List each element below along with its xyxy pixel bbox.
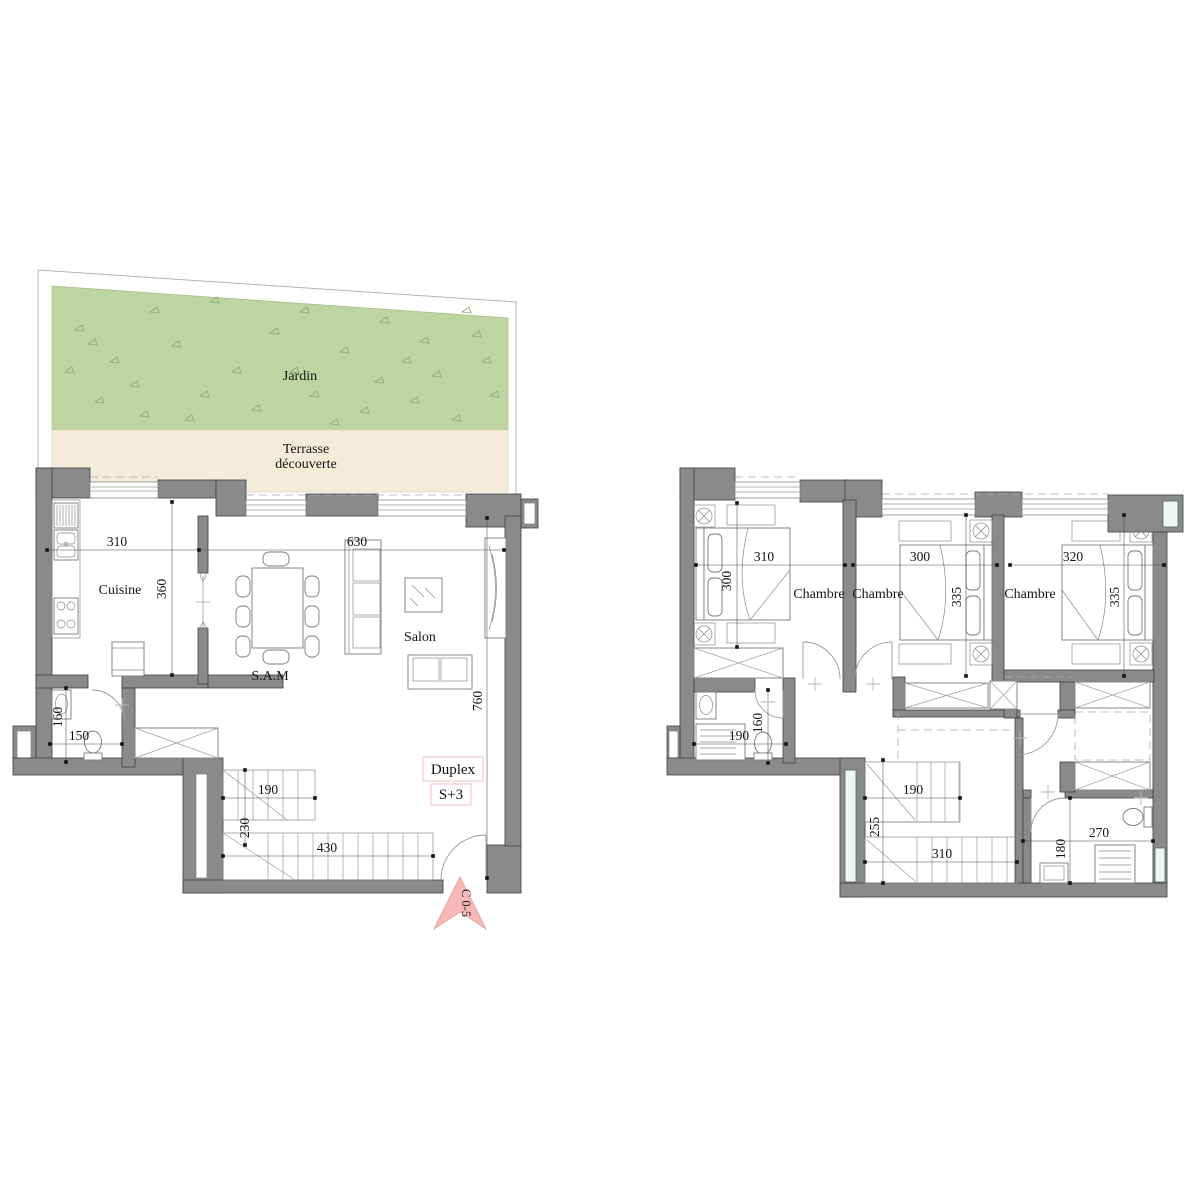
dim-bed2-depth: 335	[949, 587, 964, 608]
bench	[899, 521, 951, 541]
upper-bathroom	[696, 690, 783, 760]
dim-living-depth: 760	[470, 691, 485, 712]
bedroom2-label: Chambre	[852, 587, 903, 602]
ground-floor-plan: Jardin Terrasse découverte	[13, 270, 538, 929]
salon-label: Salon	[404, 630, 436, 645]
entry-door	[441, 835, 486, 880]
terrace-label-line2: découverte	[275, 457, 336, 472]
bedroom2-door	[855, 642, 892, 679]
toilet-icon	[755, 732, 772, 754]
upper-floor-plan: Chambre Chambre	[667, 468, 1183, 897]
sofa-large	[345, 540, 381, 654]
dim-shower-depth: 180	[1053, 839, 1068, 860]
bedroom-2: Chambre	[852, 520, 1017, 709]
closet-open	[1075, 712, 1150, 760]
bedroom-1: Chambre	[693, 505, 845, 679]
dim-ustair-top: 190	[903, 782, 924, 797]
floor-plan-canvas: Jardin Terrasse découverte	[0, 0, 1200, 1200]
dim-bath-depth: 160	[750, 713, 765, 734]
shower-room-door	[1031, 798, 1065, 832]
dim-kitchen-width: 310	[107, 534, 128, 549]
pillow	[1128, 551, 1142, 590]
pillow	[1128, 596, 1142, 635]
bedroom3-label: Chambre	[1004, 587, 1055, 602]
unit-badge-line1: Duplex	[431, 762, 476, 778]
pillow	[966, 596, 980, 635]
dining-set	[236, 552, 319, 664]
terrace-label-line1: Terrasse	[283, 442, 329, 457]
garden-label: Jardin	[283, 369, 317, 384]
upper-shower-room	[1031, 798, 1165, 883]
kitchen-island	[112, 642, 144, 676]
unit-badge: Duplex S+3	[423, 757, 483, 805]
dining-label: S.A.M	[251, 669, 289, 684]
dim-shower-width: 270	[1089, 825, 1110, 840]
bedroom1-label: Chambre	[793, 587, 844, 602]
bench	[727, 623, 775, 643]
dim-bed3-width: 320	[1063, 549, 1084, 564]
dim-wc-depth: 160	[50, 707, 65, 728]
bench	[899, 644, 951, 664]
upper-floor-windows	[735, 477, 1108, 515]
dim-bed2-width: 300	[910, 549, 931, 564]
toilet-icon	[1123, 809, 1143, 826]
wc-door	[92, 690, 124, 722]
bench	[1072, 644, 1120, 664]
dim-bed1-depth: 300	[719, 571, 734, 592]
pillow	[966, 551, 980, 590]
bedroom1-door	[803, 642, 840, 679]
dim-bed1-width: 310	[754, 549, 775, 564]
kitchen-label: Cuisine	[99, 583, 142, 598]
dim-wc-width: 150	[69, 728, 90, 743]
dim-bed3-depth: 335	[1107, 587, 1122, 608]
bed-headboard	[1145, 545, 1153, 640]
dim-bath-width: 190	[729, 728, 750, 743]
ground-floor-stairs	[135, 728, 433, 880]
bed-headboard	[984, 545, 992, 640]
bench	[727, 505, 775, 525]
pillow	[708, 534, 722, 572]
sofa-small	[408, 655, 472, 689]
upper-floor-stairs	[865, 762, 1017, 883]
salon-furniture	[345, 538, 506, 689]
entry-label: C 0-5	[459, 889, 473, 917]
bed-headboard	[696, 528, 704, 620]
dim-ustair-mid: 255	[867, 817, 882, 838]
floor-plan-drawing: Jardin Terrasse découverte	[0, 0, 1200, 1200]
dim-ustair-bottom: 310	[932, 846, 953, 861]
dining-table	[252, 568, 303, 648]
garden-area	[52, 286, 508, 430]
dim-living-width: 630	[347, 534, 368, 549]
dim-stair-top: 190	[258, 782, 279, 797]
coffee-table	[405, 578, 442, 612]
dim-kitchen-depth: 360	[154, 579, 169, 600]
bathroom-sink-icon	[696, 692, 716, 719]
unit-badge-line2: S+3	[439, 787, 463, 803]
wall-niche	[1155, 848, 1165, 882]
dim-stair-mid: 230	[237, 818, 252, 839]
dim-stair-bottom: 430	[317, 840, 338, 855]
